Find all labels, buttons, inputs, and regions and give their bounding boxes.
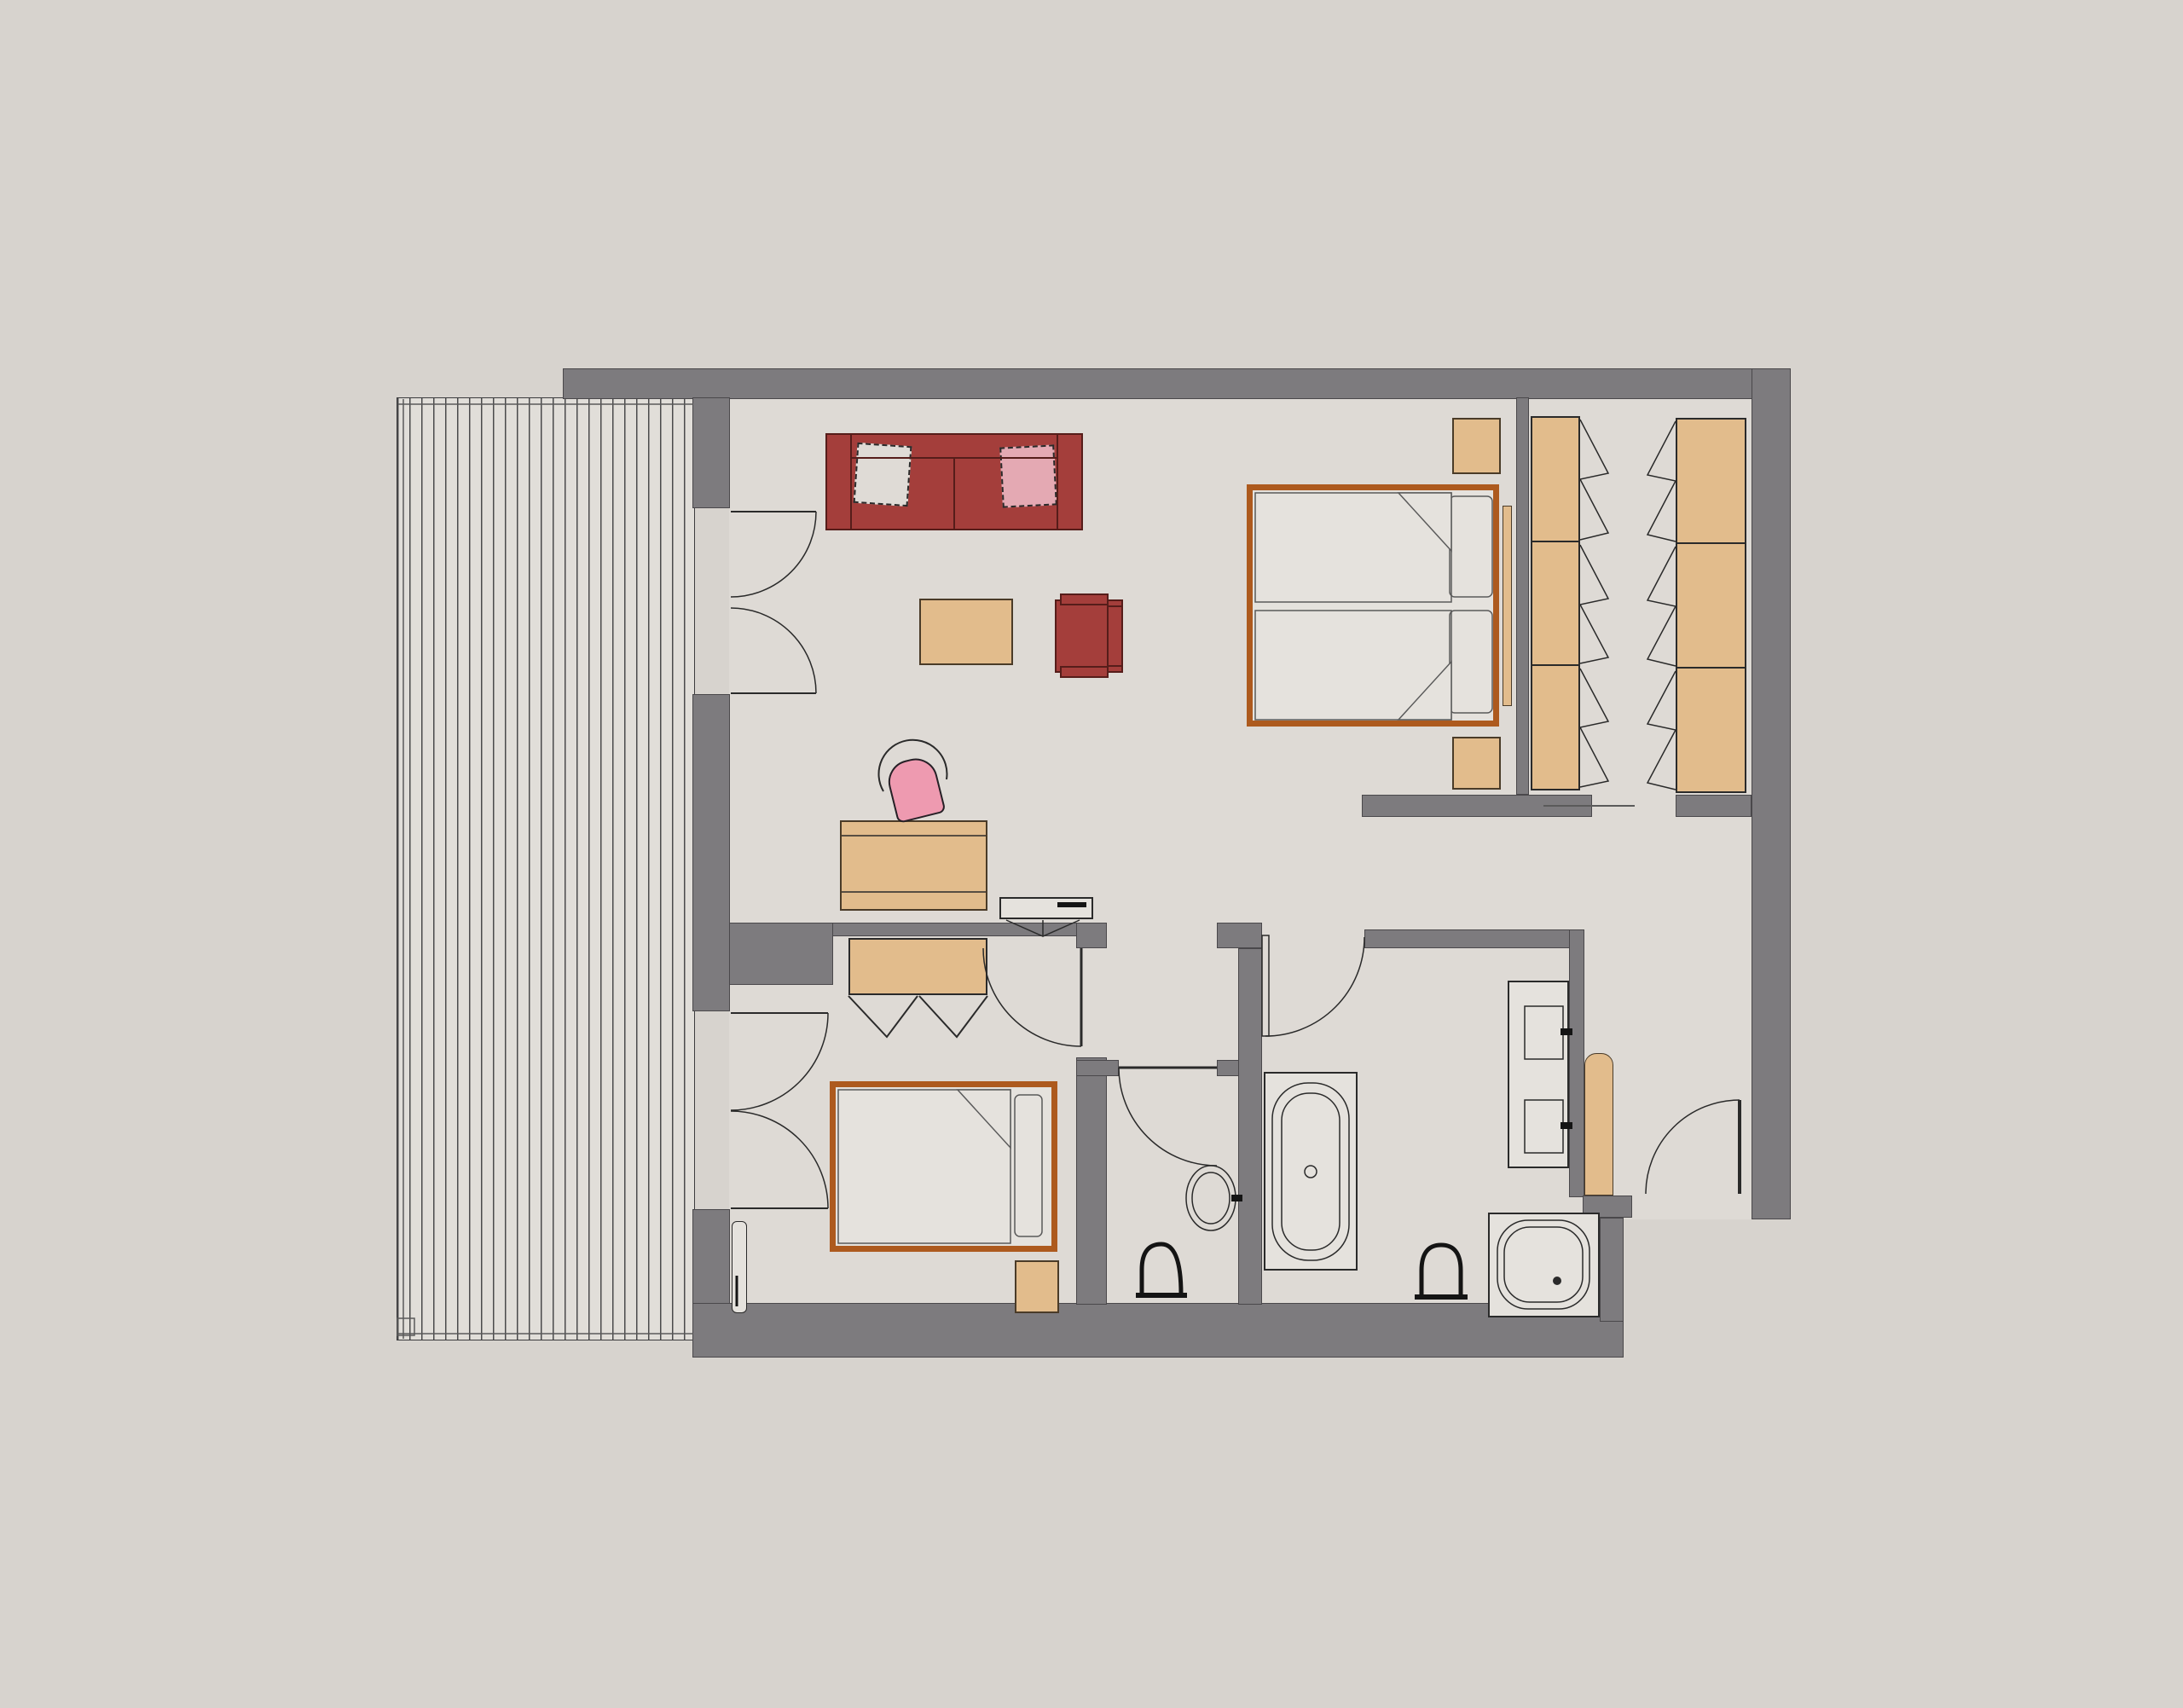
wall-bedroom2-right-top [1076,923,1107,948]
nightstand-bedroom2 [1015,1260,1059,1313]
wall-left-pier-mid [692,694,730,1011]
wall-left-pier-top [692,397,730,508]
armchair-arm-bottom [1060,666,1109,678]
wall-wardrobe-bottom-right [1676,795,1752,817]
tv-shelf [999,897,1093,919]
wardrobe-left-column [1531,416,1580,790]
bed-single-frame [830,1081,1057,1252]
wall-duct-block [729,923,833,985]
wall-wardrobe-bottom-left [1362,795,1592,817]
wardrobe-bedroom2 [848,938,987,995]
wall-lower-right [1600,1218,1624,1322]
sofa-cushion-pink [999,444,1057,507]
armchair-backrest [1107,605,1123,667]
coffee-table [919,599,1013,665]
radiator-bedroom2 [732,1221,747,1313]
outside-notch [1622,1219,1752,1358]
wall-top [563,368,1791,399]
shower-box [1488,1213,1600,1317]
terrace-deck [397,397,695,1340]
entry-bench [1584,1053,1613,1196]
wall-bath-left-block [1217,923,1262,948]
wall-right [1752,368,1791,1219]
nightstand-master-bottom [1452,737,1501,790]
wall-bath-left [1238,948,1262,1305]
nightstand-master-top [1452,418,1501,474]
wall-bath-top [1364,929,1584,948]
vanity-counter [1508,981,1569,1168]
desk [840,820,987,911]
headboard-strip [1503,506,1512,706]
floor-plan [0,0,2183,1708]
bathtub-box [1264,1072,1358,1271]
bed-master-frame [1247,484,1499,727]
wall-bedroom2-wc [1076,1057,1107,1305]
wall-bath-right [1569,929,1584,1197]
wall-bedroom-divider [1516,397,1529,795]
wardrobe-right-column [1676,418,1746,793]
armchair-arm-top [1060,593,1109,605]
wall-bottom [692,1303,1624,1358]
sofa-cushion-white [854,443,912,507]
wall-wc-top-left [1076,1060,1119,1076]
